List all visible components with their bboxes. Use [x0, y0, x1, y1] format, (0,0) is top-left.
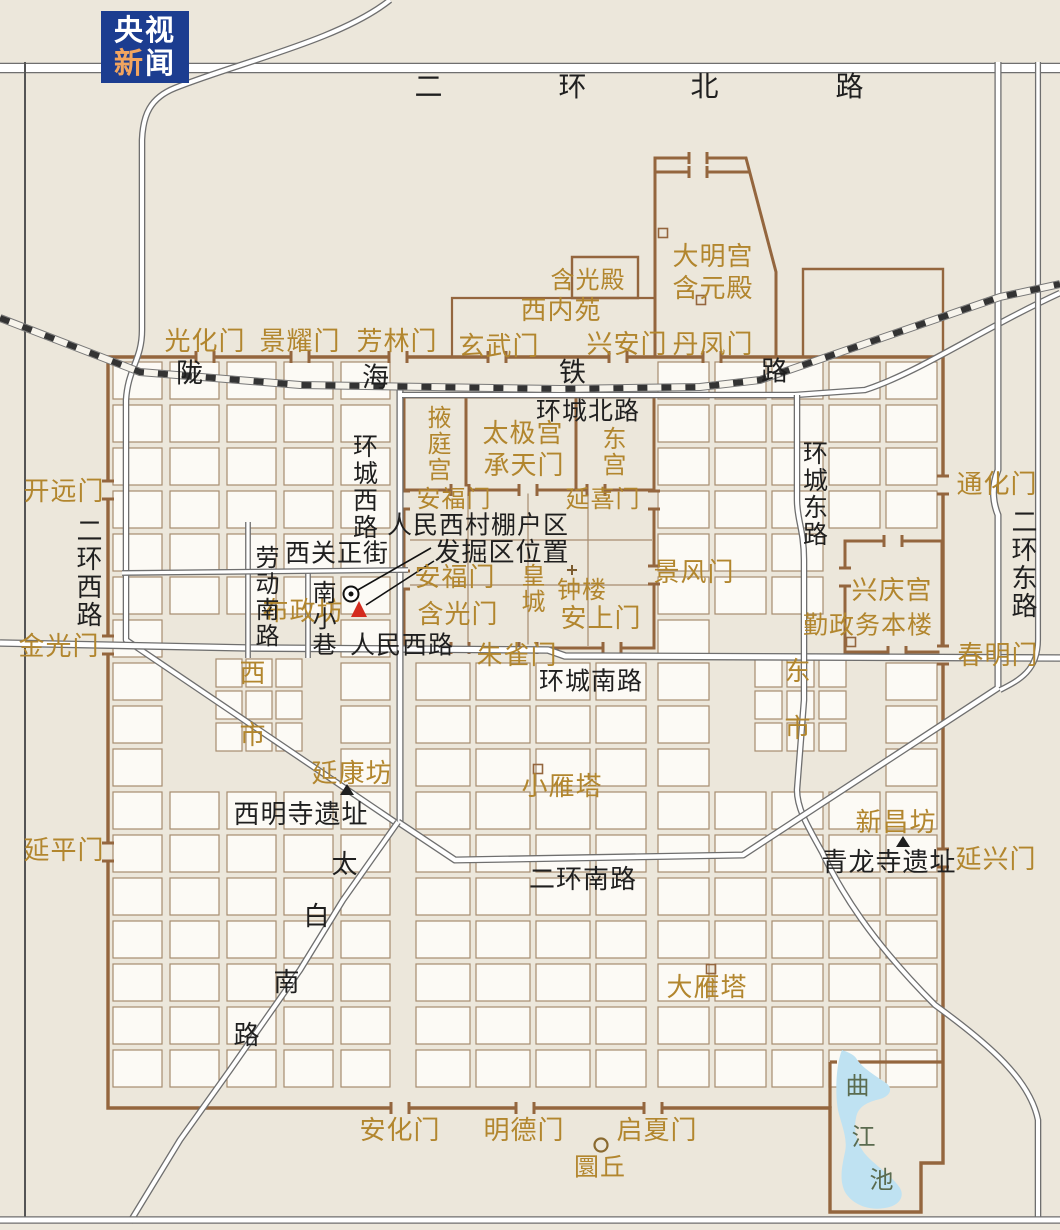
- map-background: [0, 0, 1060, 1230]
- news-map-page: { "logo": { "line1": "央视", "line2_a": "新…: [0, 0, 1060, 1230]
- logo-line2: 新闻: [114, 47, 176, 80]
- cctv-news-logo: 央视 新闻: [101, 11, 189, 83]
- huanqiu-circle-icon: [595, 1139, 608, 1152]
- logo-line1: 央视: [114, 14, 176, 47]
- changan-xian-map: [0, 0, 1060, 1230]
